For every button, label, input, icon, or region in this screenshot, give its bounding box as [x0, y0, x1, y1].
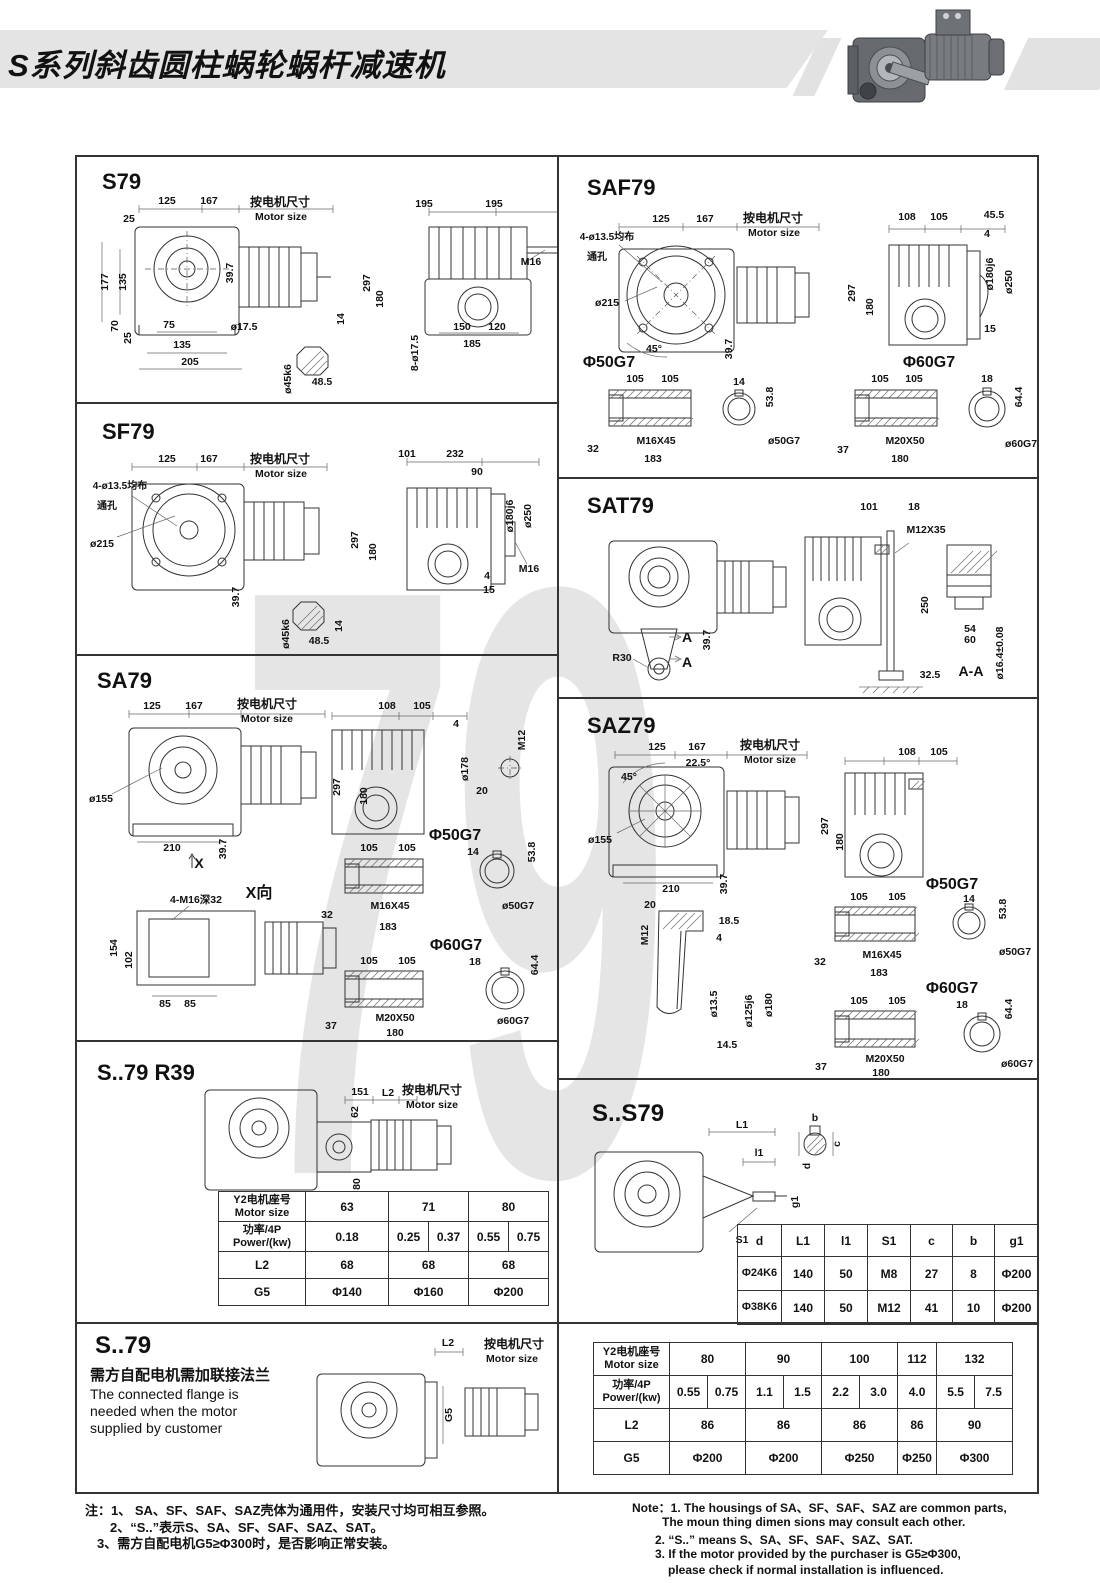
dim-label: ø60G7	[1005, 439, 1037, 450]
dim-label: 135	[173, 340, 191, 351]
section-title: S..79	[95, 1332, 151, 1360]
catalog-page: S系列斜齿圆柱蜗轮蜗杆减速机 79	[0, 0, 1100, 1583]
table-cell: 7.5	[975, 1376, 1013, 1409]
dim-label: ø60G7	[1001, 1059, 1033, 1070]
dim-label: 60	[964, 635, 976, 646]
dim-label: 4-ø13.5均布	[93, 482, 147, 492]
dim-label: 105	[661, 374, 679, 385]
dim-label: M16	[521, 257, 541, 268]
dim-label: 108	[378, 701, 396, 712]
table-cell: 50	[825, 1291, 868, 1325]
ss79-dim-table: d L1 l1 S1 c b g1 Φ24K6 140 50 M8 27 8 Φ…	[737, 1224, 1039, 1325]
dim-label: M16	[519, 564, 539, 575]
dim-label: b	[812, 1113, 818, 1124]
dim-label: 45°	[621, 772, 637, 783]
table-cell: 4.0	[898, 1376, 937, 1409]
dim-label: 183	[870, 968, 888, 979]
table-cell: 0.55	[670, 1376, 708, 1409]
section-s79-r39: S..79 R39 151 L2 按电机尺寸 Motor size 62 80 …	[77, 1042, 557, 1322]
section-title: S..79 R39	[97, 1060, 195, 1086]
table-cell: l1	[825, 1225, 868, 1257]
dim-label: 150	[453, 322, 471, 333]
gear-reducer-photo	[838, 2, 1018, 117]
table-cell: g1	[995, 1225, 1039, 1257]
dim-label: 18	[956, 1000, 968, 1011]
table-cell: 80	[670, 1343, 746, 1376]
table-cell: d	[738, 1225, 782, 1257]
dim-label: Motor size	[255, 212, 307, 223]
dim-label: c	[832, 1141, 843, 1147]
section-s79: S79 125 167 按电机尺寸 Motor size 25 177 135 …	[77, 157, 557, 402]
s79-drawing	[77, 157, 557, 402]
dim-label: ø125j6	[744, 995, 755, 1028]
dim-label: 20	[644, 900, 656, 911]
dim-label: Motor size	[241, 714, 293, 725]
section-s79-flange: S..79 需方自配电机需加联接法兰 The connected flange …	[77, 1324, 557, 1492]
drawing-grid: S79 125 167 按电机尺寸 Motor size 25 177 135 …	[75, 155, 1039, 1494]
dim-label: 105	[398, 843, 416, 854]
dim-label: Motor size	[486, 1354, 538, 1365]
dim-label: 105	[360, 956, 378, 967]
dim-label: 85	[159, 999, 171, 1010]
dim-label: Φ60G7	[903, 355, 955, 371]
dim-label: 167	[688, 742, 706, 753]
dim-label: 105	[398, 956, 416, 967]
dim-label: 39.7	[231, 587, 242, 607]
dim-label: 297	[332, 778, 343, 796]
table-cell: 2.2	[822, 1376, 860, 1409]
dim-label: M12X35	[906, 525, 945, 536]
dim-label: g1	[790, 1196, 801, 1208]
dim-label: Φ50G7	[429, 828, 481, 844]
section-title: SAT79	[587, 493, 654, 519]
flange-note-en: needed when the motor	[90, 1403, 237, 1419]
dim-label: ø215	[90, 539, 114, 550]
dim-label: 4	[453, 719, 459, 730]
dim-label: 101	[398, 449, 416, 460]
dim-label: Motor size	[744, 755, 796, 766]
dim-label: 108	[898, 212, 916, 223]
section-motor-table: Y2电机座号Motor size 80 90 100 112 132 功率/4P…	[557, 1324, 1037, 1492]
table-cell: b	[953, 1225, 995, 1257]
table-cell: L1	[782, 1225, 825, 1257]
dim-label: ø13.5	[709, 991, 720, 1018]
dim-label: 4-M16深32	[170, 895, 222, 906]
dim-label: 14	[467, 847, 479, 858]
dim-label: M16X45	[370, 901, 409, 912]
dim-label: 4	[484, 571, 490, 582]
dim-label: 14	[963, 894, 975, 905]
dim-label: 210	[662, 884, 680, 895]
table-cell: S1	[868, 1225, 911, 1257]
dim-label: l1	[755, 1148, 764, 1159]
dim-label: L2	[382, 1088, 394, 1099]
dim-label: Φ60G7	[926, 981, 978, 997]
dim-label: 177	[100, 273, 111, 291]
dim-label: d	[802, 1163, 813, 1169]
dim-label: 105	[905, 374, 923, 385]
section-sat79: SAT79 101 18 M12X35 R30 A A 39.7 250 32.…	[557, 479, 1037, 697]
dim-label: 通孔	[587, 253, 607, 263]
dim-label: 80	[352, 1178, 363, 1190]
dim-label: 105	[888, 996, 906, 1007]
section-ss79: S..S79 L1 l1 g1 S1 b c d d L1 l1 S1 c b …	[557, 1080, 1037, 1322]
saf79-drawing	[557, 157, 1037, 477]
dim-label: ø155	[89, 794, 113, 805]
dim-label: ø17.5	[231, 322, 258, 333]
dim-label: 167	[696, 214, 714, 225]
dim-label: Motor size	[406, 1100, 458, 1111]
dim-label: 70	[110, 320, 121, 332]
dim-label: M16X45	[862, 950, 901, 961]
section-sa79: SA79 125 167 按电机尺寸 Motor size ø155 210 3…	[77, 656, 557, 1040]
dim-label: 85	[184, 999, 196, 1010]
dim-label: 按电机尺寸	[250, 453, 310, 465]
table-cell: 68	[306, 1252, 389, 1279]
dim-label: ø45k6	[283, 364, 294, 394]
dim-label: 45.5	[984, 210, 1004, 221]
dim-label: 105	[413, 701, 431, 712]
dim-label: Φ60G7	[430, 938, 482, 954]
table-cell: 68	[469, 1252, 549, 1279]
dim-label: 297	[362, 274, 373, 292]
dim-label: 18	[981, 374, 993, 385]
table-cell: 41	[911, 1291, 953, 1325]
table-cell: Φ200	[746, 1442, 822, 1475]
dim-label: 105	[930, 747, 948, 758]
table-cell: 71	[389, 1192, 469, 1222]
dim-label: 195	[485, 199, 503, 210]
dim-label: 108	[898, 747, 916, 758]
dim-label: 15	[984, 324, 996, 335]
dim-label: 180	[368, 543, 379, 561]
dim-label: 205	[181, 357, 199, 368]
dim-label: 45°	[646, 344, 662, 355]
section-title: SAF79	[587, 175, 655, 201]
dim-label: ø180	[764, 993, 775, 1017]
note-cn-line: 3、需方自配电机G5≥Φ300时，是否影响正常安装。	[97, 1533, 395, 1552]
dim-label: 105	[930, 212, 948, 223]
section-sf79: SF79 125 167 按电机尺寸 Motor size 4-ø13.5均布 …	[77, 404, 557, 654]
dim-label: 37	[815, 1062, 827, 1073]
table-cell: Φ24K6	[738, 1257, 782, 1291]
dim-label: M12	[517, 730, 528, 750]
dim-label: 105	[888, 892, 906, 903]
dim-label: 105	[360, 843, 378, 854]
table-cell: 5.5	[937, 1376, 975, 1409]
dim-label: 按电机尺寸	[250, 196, 310, 208]
dim-label: 53.8	[527, 842, 538, 862]
dim-label: 180	[891, 454, 909, 465]
dim-label: 39.7	[225, 263, 236, 283]
table-cell: 27	[911, 1257, 953, 1291]
dim-label: ø250	[523, 504, 534, 528]
flange-note-en: The connected flange is	[90, 1386, 239, 1402]
note-en-line: The moun thing dimen sions may consult e…	[662, 1515, 965, 1529]
dim-label: ø250	[1004, 270, 1015, 294]
dim-label: 4	[984, 229, 990, 240]
flange-note-cn: 需方自配电机需加联接法兰	[90, 1364, 270, 1385]
dim-label: 通孔	[97, 502, 117, 512]
dim-label: 8-ø17.5	[410, 335, 421, 371]
dim-label: 105	[626, 374, 644, 385]
dim-label: 22.5°	[686, 758, 711, 769]
table-cell: 68	[389, 1252, 469, 1279]
table-cell: 50	[825, 1257, 868, 1291]
dim-label: 167	[200, 454, 218, 465]
table-cell: 功率/4PPower/(kw)	[219, 1222, 306, 1252]
table-cell: 功率/4PPower/(kw)	[594, 1376, 670, 1409]
dim-label: 14.5	[717, 1040, 737, 1051]
table-cell: 0.75	[708, 1376, 746, 1409]
table-cell: 90	[746, 1343, 822, 1376]
table-cell: G5	[219, 1279, 306, 1306]
table-cell: 112	[898, 1343, 937, 1376]
dim-label: 180	[375, 290, 386, 308]
table-cell: Φ140	[306, 1279, 389, 1306]
table-cell: 0.75	[509, 1222, 549, 1252]
dim-label: 39.7	[218, 839, 229, 859]
dim-label: 37	[325, 1021, 337, 1032]
table-cell: Φ250	[822, 1442, 898, 1475]
table-cell: M12	[868, 1291, 911, 1325]
dim-label: Φ50G7	[583, 355, 635, 371]
dim-label: X向	[246, 886, 273, 902]
table-cell: Φ300	[937, 1442, 1013, 1475]
dim-label: 180	[835, 833, 846, 851]
dim-label: 15	[483, 585, 495, 596]
dim-label: ø50G7	[768, 436, 800, 447]
dim-label: 135	[118, 273, 129, 291]
dim-label: ø60G7	[497, 1016, 529, 1027]
dim-label: Motor size	[748, 228, 800, 239]
dim-label: A	[682, 655, 692, 669]
dim-label: ø180j6	[505, 500, 516, 533]
table-cell: 86	[746, 1409, 822, 1442]
dim-label: 120	[488, 322, 506, 333]
table-cell: 86	[670, 1409, 746, 1442]
dim-label: Motor size	[255, 469, 307, 480]
dim-label: L2	[442, 1338, 454, 1349]
dim-label: Φ50G7	[926, 877, 978, 893]
dim-label: 105	[871, 374, 889, 385]
table-cell: G5	[594, 1442, 670, 1475]
dim-label: 4	[716, 933, 722, 944]
dim-label: 167	[200, 196, 218, 207]
dim-label: ø16.4±0.08	[995, 626, 1006, 679]
table-cell: 1.5	[784, 1376, 822, 1409]
dim-label: 210	[163, 843, 181, 854]
dim-label: 32	[587, 444, 599, 455]
dim-label: 75	[163, 320, 175, 331]
dim-label: ø180j6	[985, 258, 996, 291]
section-saf79: SAF79 125 167 按电机尺寸 Motor size 4-ø13.5均布…	[557, 157, 1037, 477]
dim-label: 20	[476, 786, 488, 797]
dim-label: 101	[860, 502, 878, 513]
dim-label: ø155	[588, 835, 612, 846]
page-title: S系列斜齿圆柱蜗轮蜗杆减速机	[8, 40, 446, 85]
table-cell: 86	[898, 1409, 937, 1442]
dim-label: 18	[469, 957, 481, 968]
table-cell: Φ160	[389, 1279, 469, 1306]
r39-motor-table: Y2电机座号Motor size 63 71 80 功率/4PPower/(kw…	[218, 1191, 549, 1306]
dim-label: L1	[736, 1120, 748, 1131]
dim-label: M16X45	[636, 436, 675, 447]
table-cell: 90	[937, 1409, 1013, 1442]
dim-label: 195	[415, 199, 433, 210]
dim-label: ø50G7	[999, 947, 1031, 958]
dim-label: 180	[359, 787, 370, 805]
table-cell: 132	[937, 1343, 1013, 1376]
dim-label: 183	[379, 922, 397, 933]
flange-note-en: supplied by customer	[90, 1420, 222, 1436]
dim-label: 18.5	[719, 916, 739, 927]
sa79-drawing	[77, 656, 557, 1040]
dim-label: ø50G7	[502, 901, 534, 912]
table-cell: 63	[306, 1192, 389, 1222]
section-title: SA79	[97, 668, 152, 694]
dim-label: 125	[143, 701, 161, 712]
dim-label: G5	[444, 1408, 455, 1422]
dim-label: A-A	[959, 664, 984, 678]
dim-label: ø215	[595, 298, 619, 309]
note-en-line: Note：1. The housings of SA、SF、SAF、SAZ ar…	[632, 1499, 1007, 1516]
dim-label: 102	[124, 951, 135, 969]
dim-label: 125	[652, 214, 670, 225]
table-cell: Φ200	[995, 1257, 1039, 1291]
dim-label: 14	[733, 377, 745, 388]
dim-label: 53.8	[998, 899, 1009, 919]
note-en-line: 3. If the motor provided by the purchase…	[655, 1547, 961, 1561]
dim-label: 180	[865, 298, 876, 316]
dim-label: 64.4	[1004, 999, 1015, 1019]
motor-size-table: Y2电机座号Motor size 80 90 100 112 132 功率/4P…	[593, 1342, 1013, 1475]
section-saz79: SAZ79 125 167 22.5° 按电机尺寸 Motor size 45°…	[557, 699, 1037, 1078]
dim-label: 32	[321, 910, 333, 921]
dim-label: 32	[814, 957, 826, 968]
section-title: SAZ79	[587, 713, 655, 739]
dim-label: 125	[158, 196, 176, 207]
dim-label: 62	[350, 1106, 361, 1118]
dim-label: A	[682, 630, 692, 644]
note-en-line: please check if normal installation is i…	[668, 1563, 943, 1577]
dim-label: 105	[850, 996, 868, 1007]
dim-label: 48.5	[312, 377, 332, 388]
dim-label: 105	[850, 892, 868, 903]
table-cell: Φ250	[898, 1442, 937, 1475]
dim-label: 39.7	[724, 339, 735, 359]
dim-label: 167	[185, 701, 203, 712]
table-cell: Φ200	[995, 1291, 1039, 1325]
dim-label: 90	[471, 467, 483, 478]
dim-label: 125	[648, 742, 666, 753]
dim-label: 按电机尺寸	[740, 739, 800, 751]
section-title: S..S79	[592, 1100, 664, 1128]
dim-label: 按电机尺寸	[402, 1084, 462, 1096]
dim-label: M12	[640, 925, 651, 945]
dim-label: M20X50	[885, 436, 924, 447]
dim-label: X	[194, 856, 203, 870]
dim-label: 4-ø13.5均布	[580, 233, 634, 243]
table-cell: L2	[594, 1409, 670, 1442]
dim-label: 14	[334, 620, 345, 632]
dim-label: 64.4	[1014, 387, 1025, 407]
table-cell: 0.37	[429, 1222, 469, 1252]
dim-label: 39.7	[719, 874, 730, 894]
dim-label: 18	[908, 502, 920, 513]
dim-label: 180	[386, 1028, 404, 1039]
dim-label: R30	[612, 653, 631, 664]
table-cell: 3.0	[860, 1376, 898, 1409]
dim-label: ø45k6	[281, 619, 292, 649]
dim-label: 185	[463, 339, 481, 350]
dim-label: 250	[920, 596, 931, 614]
dim-label: 180	[872, 1068, 890, 1079]
table-cell: Φ200	[469, 1279, 549, 1306]
dim-label: 232	[446, 449, 464, 460]
dim-label: 54	[964, 624, 976, 635]
table-cell: L2	[219, 1252, 306, 1279]
dim-label: 151	[351, 1087, 369, 1098]
table-cell: 100	[822, 1343, 898, 1376]
table-cell: 0.25	[389, 1222, 429, 1252]
table-cell: 1.1	[746, 1376, 784, 1409]
table-cell: c	[911, 1225, 953, 1257]
dim-label: 125	[158, 454, 176, 465]
dim-label: ø178	[460, 757, 471, 781]
table-cell: Y2电机座号Motor size	[594, 1343, 670, 1376]
dim-label: 64.4	[530, 955, 541, 975]
dim-label: 297	[847, 284, 858, 302]
table-cell: 140	[782, 1257, 825, 1291]
table-cell: 140	[782, 1291, 825, 1325]
dim-label: 297	[350, 531, 361, 549]
dim-label: 按电机尺寸	[484, 1338, 544, 1350]
dim-label: 39.7	[702, 630, 713, 650]
dim-label: 183	[644, 454, 662, 465]
table-cell: Φ200	[670, 1442, 746, 1475]
dim-label: 14	[336, 313, 347, 325]
table-cell: 8	[953, 1257, 995, 1291]
section-title: SF79	[102, 419, 155, 445]
dim-label: M20X50	[865, 1054, 904, 1065]
dim-label: 25	[123, 332, 134, 344]
deco-stripe-right	[1004, 38, 1100, 90]
dim-label: 297	[820, 817, 831, 835]
dim-label: 32.5	[920, 670, 940, 681]
dim-label: 154	[109, 939, 120, 957]
note-en-line: 2. “S..” means S、SA、SF、SAF、SAZ、SAT.	[655, 1531, 913, 1548]
table-cell: 80	[469, 1192, 549, 1222]
table-cell: 10	[953, 1291, 995, 1325]
dim-label: 48.5	[309, 636, 329, 647]
dim-label: 25	[123, 214, 135, 225]
table-cell: M8	[868, 1257, 911, 1291]
table-cell: Φ38K6	[738, 1291, 782, 1325]
table-cell: 86	[822, 1409, 898, 1442]
table-cell: Y2电机座号Motor size	[219, 1192, 306, 1222]
table-cell: 0.55	[469, 1222, 509, 1252]
table-cell: 0.18	[306, 1222, 389, 1252]
dim-label: 53.8	[765, 387, 776, 407]
dim-label: 按电机尺寸	[743, 212, 803, 224]
dim-label: 按电机尺寸	[237, 698, 297, 710]
dim-label: 37	[837, 445, 849, 456]
section-title: S79	[102, 169, 141, 195]
dim-label: M20X50	[375, 1013, 414, 1024]
